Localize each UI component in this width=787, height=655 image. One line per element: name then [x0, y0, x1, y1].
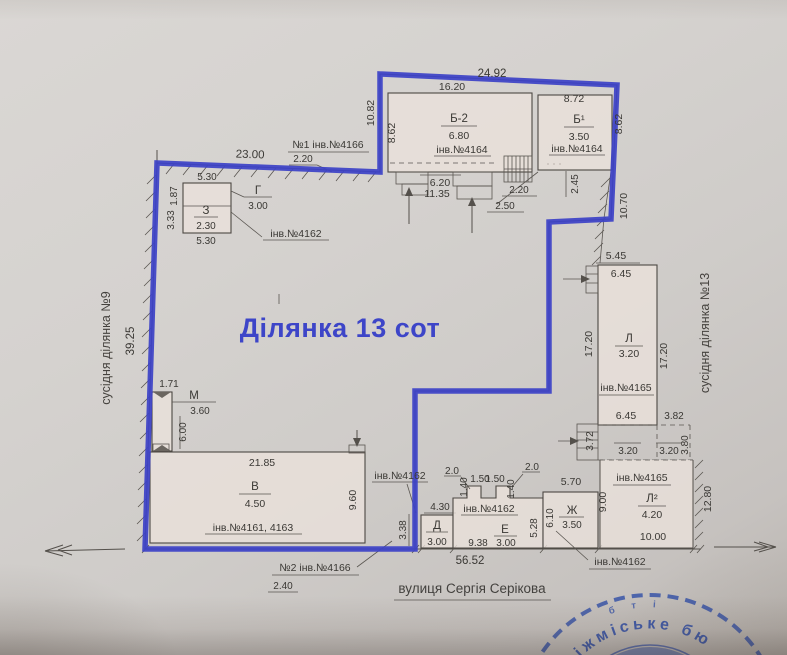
m-width: 1.71 [159, 379, 179, 390]
l2-side: 9.00 [597, 492, 609, 513]
b2-side: 8.62 [386, 123, 398, 144]
yard-gap: 3.38 [398, 520, 409, 540]
l2-height: 4.20 [642, 509, 663, 521]
survey-plan-photo: міжміське бю б т і 24.92 23.00 39.25 56.… [0, 0, 787, 655]
dim-bottom: 56.52 [456, 555, 485, 567]
l2-width: 10.00 [640, 531, 666, 543]
zh-inv: інв.№4162 [594, 556, 645, 568]
vent-arrow-icon [353, 438, 361, 447]
e-inv: інв.№4162 [463, 503, 514, 515]
dim-left: 39.25 [125, 327, 137, 356]
gz-inv: інв.№4162 [270, 228, 321, 240]
l-dim2: 3.82 [664, 411, 684, 422]
v-height: 4.50 [245, 498, 266, 510]
b1-inv: інв.№4164 [551, 143, 602, 155]
gz-side1: 1.87 [169, 186, 180, 206]
e-side: 5.28 [529, 518, 540, 538]
entrance-arrow-icon [468, 197, 476, 206]
e-n2: 1.40 [459, 477, 470, 497]
l-width-bottom: 6.45 [616, 410, 637, 422]
l-side-left: 17.20 [583, 331, 595, 357]
b1-width: 8.72 [564, 93, 585, 105]
e-n5: 1.40 [506, 479, 517, 499]
b1-name: Б¹ [573, 114, 585, 126]
porch-1 [396, 172, 428, 184]
zh-name: Ж [567, 505, 578, 517]
l2-inv: інв.№4165 [616, 472, 667, 484]
dim-right-mid: 10.70 [618, 193, 630, 219]
l-inv: інв.№4165 [600, 382, 651, 394]
gz-width-bottom: 5.30 [196, 236, 216, 247]
zh-height: 3.50 [562, 520, 582, 531]
round-stamp: міжміське бю б т і [520, 595, 780, 655]
dim-arrow-icon [570, 437, 579, 445]
b2-height: 6.80 [449, 130, 470, 142]
gz-width-top: 5.30 [197, 172, 217, 183]
mark-no1-label: №1 інв.№4166 [292, 139, 363, 151]
l-dim1: 5.45 [606, 250, 627, 262]
dim-top-left: 23.00 [236, 149, 265, 162]
stamp-marks-text: б т і [607, 599, 663, 617]
g-height: 3.00 [248, 201, 268, 212]
b2-width: 16.20 [439, 81, 465, 93]
l-ext3: 3.20 [659, 446, 679, 457]
gz-side2: 3.33 [166, 210, 177, 230]
zh-width: 5.70 [561, 476, 582, 488]
l-width: 6.45 [611, 268, 632, 280]
dim-arrow-icon [581, 275, 590, 283]
plot-title: Ділянка 13 сот [240, 313, 441, 343]
e-n4: 1.50 [485, 474, 505, 485]
l-ext1: 3.72 [585, 431, 596, 451]
mark-no1-dim: 2.20 [293, 154, 313, 165]
zh-side: 6.10 [545, 508, 556, 528]
neighbor-right-label: сусідня ділянка №13 [698, 273, 712, 393]
b2-name: Б-2 [450, 113, 468, 125]
z-name: З [203, 205, 210, 217]
l-name: Л [625, 333, 633, 345]
m-height: 3.60 [190, 406, 210, 417]
v-name: В [251, 481, 259, 493]
b2-d1: 2.20 [509, 185, 529, 196]
survey-plan-drawing: міжміське бю б т і 24.92 23.00 39.25 56.… [0, 0, 787, 655]
e-height: 3.00 [496, 538, 516, 549]
dim-right-bottom: 12.80 [702, 486, 714, 512]
dim-left-step: 10.82 [365, 100, 377, 126]
v-width: 21.85 [249, 457, 275, 469]
mark-no2-label: №2 інв.№4166 [279, 562, 350, 574]
building-l [558, 263, 693, 460]
dim-top: 24.92 [478, 68, 507, 80]
porch-2 [453, 172, 492, 186]
b1-height: 3.50 [569, 131, 590, 143]
yard-inv: інв.№4162 [374, 470, 425, 482]
v-inv: інв.№4161, 4163 [213, 522, 294, 534]
d-width: 4.30 [430, 502, 450, 513]
neighbor-left-label: сусідня ділянка №9 [99, 291, 113, 404]
v-side: 9.60 [347, 490, 359, 511]
m-name: М [189, 390, 199, 402]
e-name: Е [501, 524, 509, 536]
dim-right-top: 8.62 [613, 114, 625, 135]
l2-name: Л² [646, 493, 658, 505]
b2-inv: інв.№4164 [436, 144, 487, 156]
street-arrow-right [714, 542, 776, 552]
street-arrow-left [45, 545, 125, 556]
l-side-right: 17.20 [658, 343, 670, 369]
m-side: 6.00 [178, 422, 189, 442]
street-label: вулиця Сергія Серікова [398, 581, 546, 596]
e-width: 9.38 [468, 538, 488, 549]
entrance-arrow-icon [405, 187, 413, 196]
b2-d2: 2.50 [495, 201, 515, 212]
d-height: 3.00 [427, 537, 447, 548]
g-name: Г [255, 185, 262, 197]
e-n1: 2.0 [445, 466, 459, 477]
d-name: Д [433, 520, 441, 532]
l-height: 3.20 [619, 348, 640, 360]
b2-d3: 2.45 [570, 174, 581, 194]
b2-porch-dim: 11.35 [424, 188, 450, 200]
z-height: 2.30 [196, 221, 216, 232]
e-n6: 2.0 [525, 462, 539, 473]
l-ext2: 3.20 [618, 446, 638, 457]
l-ext4: 3.80 [680, 435, 691, 455]
mark-no2-dim: 2.40 [273, 581, 293, 592]
